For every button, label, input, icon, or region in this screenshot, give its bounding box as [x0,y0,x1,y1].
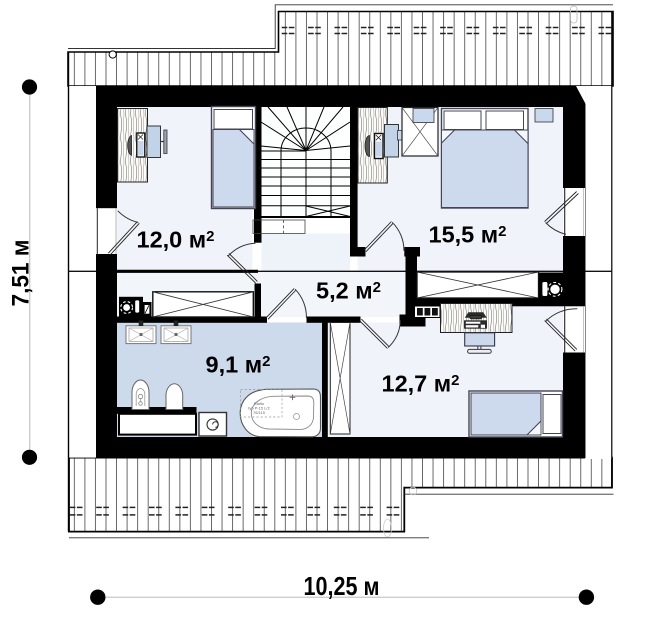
svg-text:12,0 м2: 12,0 м2 [137,227,215,253]
svg-text:76/115: 76/115 [253,410,266,415]
svg-text:5,2 м2: 5,2 м2 [316,278,381,304]
svg-text:7,51 м: 7,51 м [8,240,35,307]
svg-text:9,1 м2: 9,1 м2 [206,352,271,378]
svg-text:12,7 м2: 12,7 м2 [382,371,460,397]
svg-text:15,5 м2: 15,5 м2 [429,222,507,248]
svg-text:10,25 м: 10,25 м [304,571,380,601]
